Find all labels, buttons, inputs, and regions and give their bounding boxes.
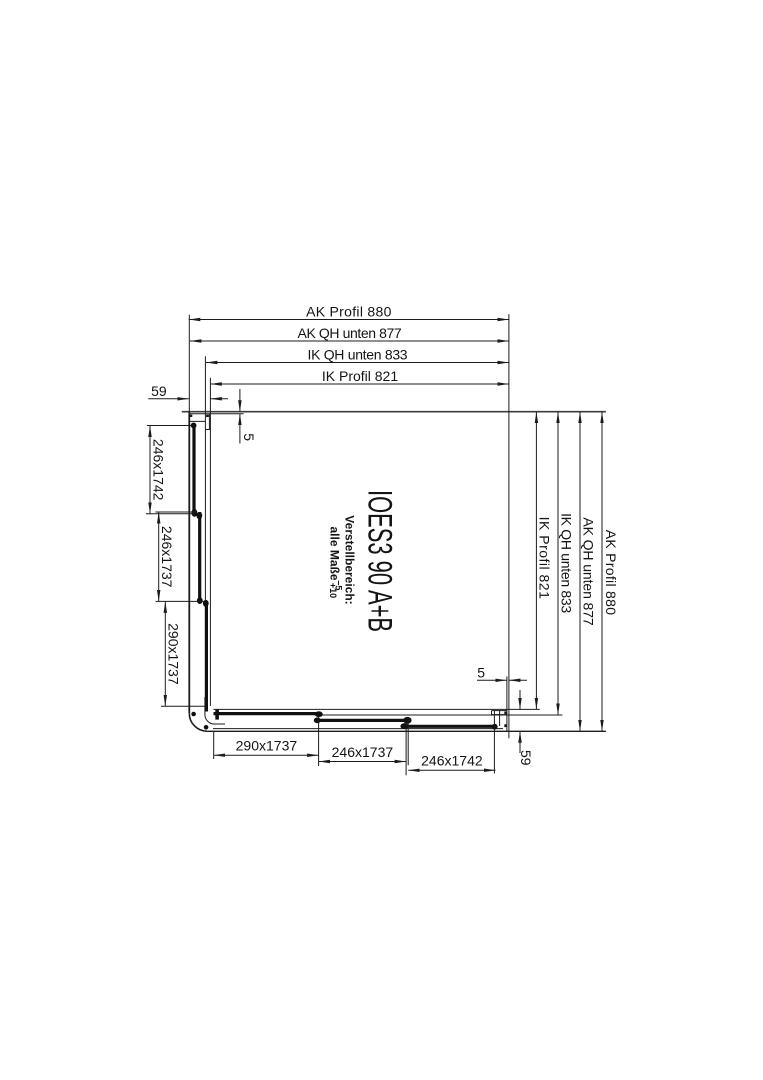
svg-text:IK QH unten 833: IK QH unten 833 xyxy=(308,347,408,363)
svg-text:246x1737: 246x1737 xyxy=(159,526,175,588)
svg-text:Verstellbereich:: Verstellbereich: xyxy=(343,515,357,604)
svg-text:AK Profil 880: AK Profil 880 xyxy=(603,530,619,616)
svg-text:290x1737: 290x1737 xyxy=(236,738,298,754)
svg-text:5: 5 xyxy=(477,664,485,680)
svg-text:246x1742: 246x1742 xyxy=(421,753,483,769)
svg-text:+10: +10 xyxy=(328,583,338,598)
svg-text:IK Profil 821: IK Profil 821 xyxy=(537,517,553,600)
svg-text:IOES3 90 A+B: IOES3 90 A+B xyxy=(361,490,399,632)
svg-text:IK Profil 821: IK Profil 821 xyxy=(322,368,398,384)
svg-text:290x1737: 290x1737 xyxy=(166,623,182,685)
svg-text:246x1742: 246x1742 xyxy=(150,439,166,501)
svg-text:AK QH unten 877: AK QH unten 877 xyxy=(580,517,596,626)
svg-text:AK QH unten 877: AK QH unten 877 xyxy=(298,325,402,341)
svg-text:59: 59 xyxy=(151,383,167,399)
svg-text:alle Maße: alle Maße xyxy=(328,526,342,580)
svg-text:AK Profil 880: AK Profil 880 xyxy=(306,304,392,320)
svg-text:5: 5 xyxy=(241,433,257,441)
svg-text:59: 59 xyxy=(518,750,534,766)
svg-text:246x1737: 246x1737 xyxy=(332,744,394,760)
svg-text:IK QH unten 833: IK QH unten 833 xyxy=(558,513,574,613)
